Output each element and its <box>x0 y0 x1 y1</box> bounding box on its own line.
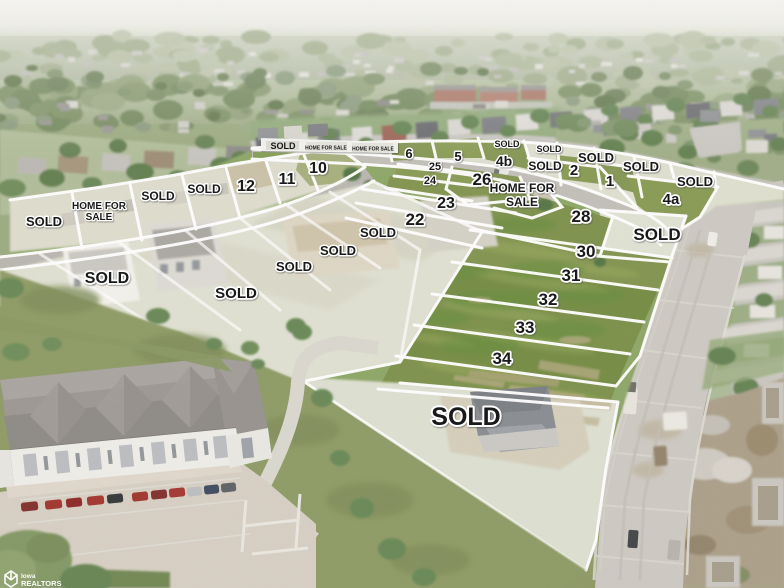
svg-text:REALTORS: REALTORS <box>21 579 62 588</box>
